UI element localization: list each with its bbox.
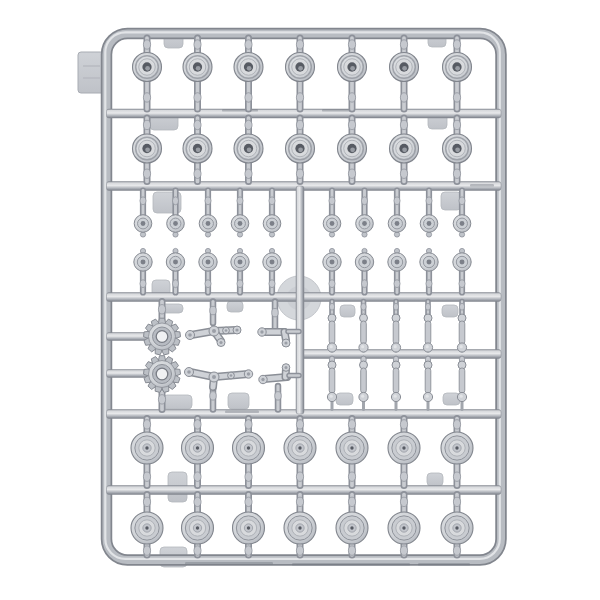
gate-stem bbox=[393, 302, 398, 315]
circle-shape bbox=[145, 446, 148, 449]
circle-shape bbox=[196, 147, 201, 152]
rail-horizontal bbox=[107, 486, 502, 495]
circle-shape bbox=[156, 368, 168, 380]
circle-shape bbox=[350, 147, 355, 152]
ellipse-shape bbox=[400, 497, 407, 507]
ellipse-shape bbox=[400, 420, 407, 430]
gate-stem bbox=[400, 465, 407, 486]
circle-shape bbox=[145, 66, 150, 71]
rail-horizontal bbox=[107, 109, 502, 118]
ellipse-shape bbox=[296, 93, 303, 103]
ellipse-shape bbox=[143, 472, 150, 482]
circle-shape bbox=[212, 329, 216, 333]
ellipse-shape bbox=[210, 306, 216, 315]
gate-stem bbox=[245, 118, 252, 135]
ellipse-shape bbox=[143, 40, 150, 50]
circle-shape bbox=[247, 66, 252, 71]
ellipse-shape bbox=[361, 303, 366, 310]
gate-stem bbox=[296, 82, 303, 110]
circle-shape bbox=[284, 366, 287, 369]
ellipse-shape bbox=[210, 392, 216, 401]
ellipse-shape bbox=[459, 303, 464, 310]
ellipse-shape bbox=[329, 280, 335, 288]
ellipse-shape bbox=[453, 420, 460, 430]
circle-shape bbox=[455, 446, 458, 449]
circle-shape bbox=[426, 345, 429, 348]
gate-stem bbox=[426, 191, 432, 216]
gate-stem bbox=[400, 163, 407, 182]
gate-stem bbox=[400, 495, 407, 513]
circle-shape bbox=[187, 370, 191, 374]
circle-shape bbox=[173, 221, 178, 226]
circle-shape bbox=[395, 221, 400, 226]
gate-stem bbox=[143, 163, 150, 182]
ejector-pad bbox=[441, 192, 461, 210]
mold-mark bbox=[222, 109, 258, 112]
circle-shape bbox=[238, 260, 243, 265]
ellipse-shape bbox=[348, 472, 355, 482]
rect-shape bbox=[361, 368, 367, 393]
gate-stem bbox=[296, 419, 303, 433]
rect-shape bbox=[459, 368, 465, 393]
ellipse-shape bbox=[453, 472, 460, 482]
gate-stem bbox=[269, 272, 275, 293]
rail-stub bbox=[107, 333, 149, 341]
ellipse-shape bbox=[245, 546, 252, 556]
ellipse-shape bbox=[194, 40, 201, 50]
ellipse-shape bbox=[400, 169, 407, 179]
gate-stem bbox=[194, 118, 201, 135]
mold-mark bbox=[322, 109, 352, 112]
gate-stem bbox=[143, 118, 150, 135]
circle-shape bbox=[330, 221, 335, 226]
gate-stem bbox=[194, 465, 201, 486]
gate-stem bbox=[237, 191, 243, 216]
circle-shape bbox=[460, 345, 463, 348]
ellipse-shape bbox=[400, 93, 407, 103]
gate-stem bbox=[329, 191, 335, 216]
ellipse-shape bbox=[245, 472, 252, 482]
gate-stem bbox=[296, 545, 303, 556]
rect-shape bbox=[425, 321, 431, 344]
gate-stem bbox=[296, 465, 303, 486]
ellipse-shape bbox=[194, 120, 201, 129]
gate-stem bbox=[453, 495, 460, 513]
circle-shape bbox=[238, 221, 243, 226]
ellipse-shape bbox=[143, 169, 150, 179]
ellipse-shape bbox=[245, 120, 252, 129]
gate-stem bbox=[245, 163, 252, 182]
circle-shape bbox=[235, 328, 238, 331]
ellipse-shape bbox=[400, 546, 407, 556]
ellipse-shape bbox=[172, 197, 178, 205]
circle-shape bbox=[460, 260, 465, 265]
gate-stem bbox=[348, 118, 355, 135]
gate-stem bbox=[194, 38, 201, 54]
ellipse-shape bbox=[296, 420, 303, 430]
circle-shape bbox=[394, 395, 397, 398]
ellipse-shape bbox=[272, 308, 278, 317]
circle-shape bbox=[402, 526, 405, 529]
circle-shape bbox=[141, 260, 146, 265]
gate-stem bbox=[400, 38, 407, 54]
mold-mark bbox=[225, 411, 259, 414]
ellipse-shape bbox=[143, 546, 150, 556]
gate-stem bbox=[394, 272, 400, 293]
circle-shape bbox=[212, 375, 216, 379]
gate-stem bbox=[453, 545, 460, 556]
gate-stem bbox=[194, 163, 201, 182]
gate-stem bbox=[210, 302, 216, 324]
gate-stem bbox=[296, 163, 303, 182]
ellipse-shape bbox=[205, 197, 211, 205]
circle-shape bbox=[270, 221, 275, 226]
ellipse-shape bbox=[296, 40, 303, 50]
circle-shape bbox=[330, 260, 335, 265]
circle-shape bbox=[395, 260, 400, 265]
gate-stem bbox=[245, 38, 252, 54]
ellipse-shape bbox=[143, 420, 150, 430]
ellipse-shape bbox=[194, 93, 201, 103]
gate-stem bbox=[459, 272, 465, 293]
gate-stem bbox=[296, 118, 303, 135]
ellipse-shape bbox=[194, 497, 201, 507]
gate-stem bbox=[329, 302, 334, 315]
ellipse-shape bbox=[245, 169, 252, 179]
gate-stem bbox=[400, 118, 407, 135]
gate-stem bbox=[459, 302, 464, 315]
gate-stem bbox=[453, 419, 460, 433]
circle-shape bbox=[196, 66, 201, 71]
gate-stem bbox=[143, 419, 150, 433]
gate-stem bbox=[361, 191, 367, 216]
circle-shape bbox=[247, 372, 250, 375]
ellipse-shape bbox=[453, 546, 460, 556]
gate-stem bbox=[348, 495, 355, 513]
gate-stem bbox=[158, 302, 165, 321]
circle-shape bbox=[219, 341, 222, 344]
rect-shape bbox=[393, 321, 399, 344]
ellipse-shape bbox=[348, 93, 355, 103]
ejector-pad bbox=[340, 305, 355, 317]
gate-stem bbox=[348, 82, 355, 110]
rect-shape bbox=[329, 321, 335, 344]
ellipse-shape bbox=[348, 40, 355, 50]
circle-shape bbox=[247, 147, 252, 152]
ellipse-shape bbox=[426, 280, 432, 288]
ejector-pad bbox=[336, 393, 353, 405]
gate-stem bbox=[400, 419, 407, 433]
gate-stem bbox=[143, 545, 150, 556]
circle-shape bbox=[350, 446, 353, 449]
gate-stem bbox=[143, 82, 150, 110]
ellipse-shape bbox=[453, 169, 460, 179]
gate-stem bbox=[143, 465, 150, 486]
circle-shape bbox=[350, 526, 353, 529]
circle-shape bbox=[230, 374, 233, 377]
ejector-pad bbox=[227, 301, 243, 312]
ellipse-shape bbox=[237, 280, 243, 288]
gate-stem bbox=[140, 272, 146, 293]
gate-stem bbox=[194, 495, 201, 513]
circle-shape bbox=[460, 221, 465, 226]
gate-stem bbox=[205, 191, 211, 216]
gate-stem bbox=[275, 386, 281, 410]
circle-shape bbox=[362, 260, 367, 265]
circle-shape bbox=[402, 147, 407, 152]
circle-shape bbox=[284, 341, 287, 344]
circle-shape bbox=[455, 526, 458, 529]
ellipse-shape bbox=[269, 197, 275, 205]
ellipse-shape bbox=[459, 197, 465, 205]
ellipse-shape bbox=[158, 395, 165, 405]
circle-shape bbox=[427, 260, 432, 265]
rect-shape bbox=[459, 321, 465, 344]
ellipse-shape bbox=[426, 197, 432, 205]
gate-stem bbox=[394, 191, 400, 216]
gate-stem bbox=[400, 545, 407, 556]
ellipse-shape bbox=[172, 280, 178, 288]
gate-stem bbox=[194, 82, 201, 110]
ellipse-shape bbox=[143, 497, 150, 507]
rail-stub bbox=[107, 370, 149, 378]
circle-shape bbox=[427, 221, 432, 226]
rail-vertical bbox=[296, 186, 304, 414]
circle-shape bbox=[145, 147, 150, 152]
circle-shape bbox=[426, 395, 429, 398]
ellipse-shape bbox=[296, 497, 303, 507]
ellipse-shape bbox=[425, 303, 430, 310]
circle-shape bbox=[196, 526, 199, 529]
gate-stem bbox=[400, 82, 407, 110]
gate-stem bbox=[329, 272, 335, 293]
mold-mark bbox=[418, 563, 470, 566]
ellipse-shape bbox=[329, 197, 335, 205]
circle-shape bbox=[330, 395, 333, 398]
circle-shape bbox=[206, 221, 211, 226]
mold-mark bbox=[470, 184, 494, 187]
rect-shape bbox=[393, 368, 399, 393]
gate-stem bbox=[205, 272, 211, 293]
ellipse-shape bbox=[269, 280, 275, 288]
gate-stem bbox=[348, 163, 355, 182]
gate-stem bbox=[453, 118, 460, 135]
circle-shape bbox=[225, 329, 228, 332]
gate-stem bbox=[140, 191, 146, 216]
ellipse-shape bbox=[143, 120, 150, 129]
rect-shape bbox=[329, 368, 335, 393]
ellipse-shape bbox=[453, 93, 460, 103]
ellipse-shape bbox=[393, 303, 398, 310]
ellipse-shape bbox=[329, 303, 334, 310]
ellipse-shape bbox=[400, 40, 407, 50]
mold-mark bbox=[292, 563, 410, 566]
ellipse-shape bbox=[348, 120, 355, 129]
gate-stem bbox=[245, 82, 252, 110]
circle-shape bbox=[173, 260, 178, 265]
circle-shape bbox=[141, 221, 146, 226]
ellipse-shape bbox=[245, 93, 252, 103]
ellipse-shape bbox=[296, 169, 303, 179]
gate-stem bbox=[348, 465, 355, 486]
gate-stem bbox=[348, 419, 355, 433]
gate-stem bbox=[348, 38, 355, 54]
circle-shape bbox=[298, 66, 303, 71]
ellipse-shape bbox=[140, 280, 146, 288]
gate-stem bbox=[245, 419, 252, 433]
circle-shape bbox=[260, 330, 263, 333]
circle-shape bbox=[402, 446, 405, 449]
gate-stem bbox=[237, 272, 243, 293]
circle-shape bbox=[188, 333, 192, 337]
circle-shape bbox=[196, 446, 199, 449]
circle-shape bbox=[298, 446, 301, 449]
ellipse-shape bbox=[194, 546, 201, 556]
ejector-pad bbox=[427, 473, 443, 486]
mold-mark bbox=[185, 562, 273, 565]
gate-stem bbox=[272, 302, 278, 329]
gate-stem bbox=[194, 545, 201, 556]
circle-shape bbox=[455, 147, 460, 152]
gate-stem bbox=[296, 495, 303, 513]
ellipse-shape bbox=[237, 197, 243, 205]
circle-shape bbox=[330, 345, 333, 348]
circle-shape bbox=[270, 260, 275, 265]
gate-stem bbox=[158, 392, 165, 410]
ellipse-shape bbox=[348, 546, 355, 556]
ellipse-shape bbox=[348, 169, 355, 179]
gate-stem bbox=[172, 272, 178, 293]
ellipse-shape bbox=[459, 280, 465, 288]
ellipse-shape bbox=[348, 420, 355, 430]
ellipse-shape bbox=[194, 420, 201, 430]
ellipse-shape bbox=[245, 40, 252, 50]
gate-stem bbox=[296, 38, 303, 54]
rect-shape bbox=[425, 368, 431, 393]
circle-shape bbox=[298, 147, 303, 152]
ellipse-shape bbox=[140, 197, 146, 205]
circle-shape bbox=[460, 395, 463, 398]
gate-stem bbox=[245, 465, 252, 486]
ellipse-shape bbox=[205, 280, 211, 288]
gate-stem bbox=[453, 163, 460, 182]
gate-stem bbox=[348, 545, 355, 556]
gate-stem bbox=[143, 38, 150, 54]
gate-stem bbox=[245, 495, 252, 513]
circle-shape bbox=[361, 345, 364, 348]
circle-shape bbox=[402, 66, 407, 71]
ellipse-shape bbox=[296, 546, 303, 556]
ellipse-shape bbox=[361, 197, 367, 205]
circle-shape bbox=[156, 331, 168, 343]
gate-stem bbox=[245, 545, 252, 556]
ellipse-shape bbox=[296, 472, 303, 482]
circle-shape bbox=[145, 526, 148, 529]
ellipse-shape bbox=[453, 40, 460, 50]
ellipse-shape bbox=[394, 280, 400, 288]
circle-shape bbox=[455, 66, 460, 71]
gate-stem bbox=[453, 82, 460, 110]
ellipse-shape bbox=[453, 497, 460, 507]
ellipse-shape bbox=[245, 497, 252, 507]
rect-shape bbox=[361, 321, 367, 344]
circle-shape bbox=[350, 66, 355, 71]
circle-shape bbox=[206, 260, 211, 265]
photo-stage bbox=[0, 0, 600, 600]
ellipse-shape bbox=[245, 420, 252, 430]
ellipse-shape bbox=[275, 392, 281, 401]
circle-shape bbox=[394, 345, 397, 348]
gate-stem bbox=[194, 419, 201, 433]
ellipse-shape bbox=[296, 120, 303, 129]
sprue-sheet bbox=[0, 0, 600, 600]
gate-stem bbox=[425, 302, 430, 315]
ellipse-shape bbox=[143, 93, 150, 103]
gate-stem bbox=[453, 465, 460, 486]
gate-stem bbox=[459, 191, 465, 216]
gate-stem bbox=[361, 272, 367, 293]
gate-stem bbox=[453, 38, 460, 54]
ejector-pad bbox=[228, 393, 249, 409]
ellipse-shape bbox=[158, 305, 165, 315]
circle-shape bbox=[247, 526, 250, 529]
gate-stem bbox=[143, 495, 150, 513]
ellipse-shape bbox=[194, 472, 201, 482]
ellipse-shape bbox=[453, 120, 460, 129]
sprue-photo bbox=[0, 0, 600, 600]
gate-stem bbox=[172, 191, 178, 216]
ellipse-shape bbox=[400, 120, 407, 129]
circle-shape bbox=[261, 378, 264, 381]
ellipse-shape bbox=[361, 280, 367, 288]
ellipse-shape bbox=[348, 497, 355, 507]
gate-stem bbox=[426, 272, 432, 293]
circle-shape bbox=[247, 446, 250, 449]
circle-shape bbox=[362, 221, 367, 226]
ellipse-shape bbox=[394, 197, 400, 205]
ejector-pad bbox=[442, 305, 458, 317]
ellipse-shape bbox=[400, 472, 407, 482]
circle-shape bbox=[298, 526, 301, 529]
ejector-pad bbox=[163, 395, 192, 409]
ellipse-shape bbox=[194, 169, 201, 179]
gate-stem bbox=[269, 191, 275, 216]
gate-stem bbox=[361, 302, 366, 315]
circle-shape bbox=[361, 395, 364, 398]
